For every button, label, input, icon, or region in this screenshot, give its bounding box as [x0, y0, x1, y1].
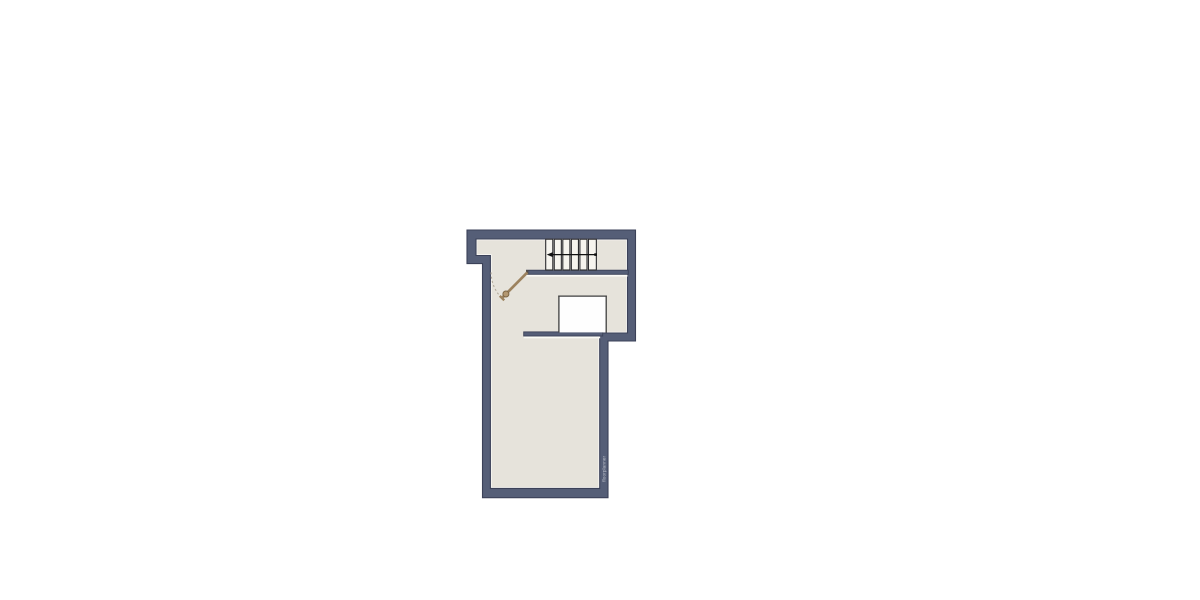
svg-text:floorplanner: floorplanner [602, 456, 607, 482]
